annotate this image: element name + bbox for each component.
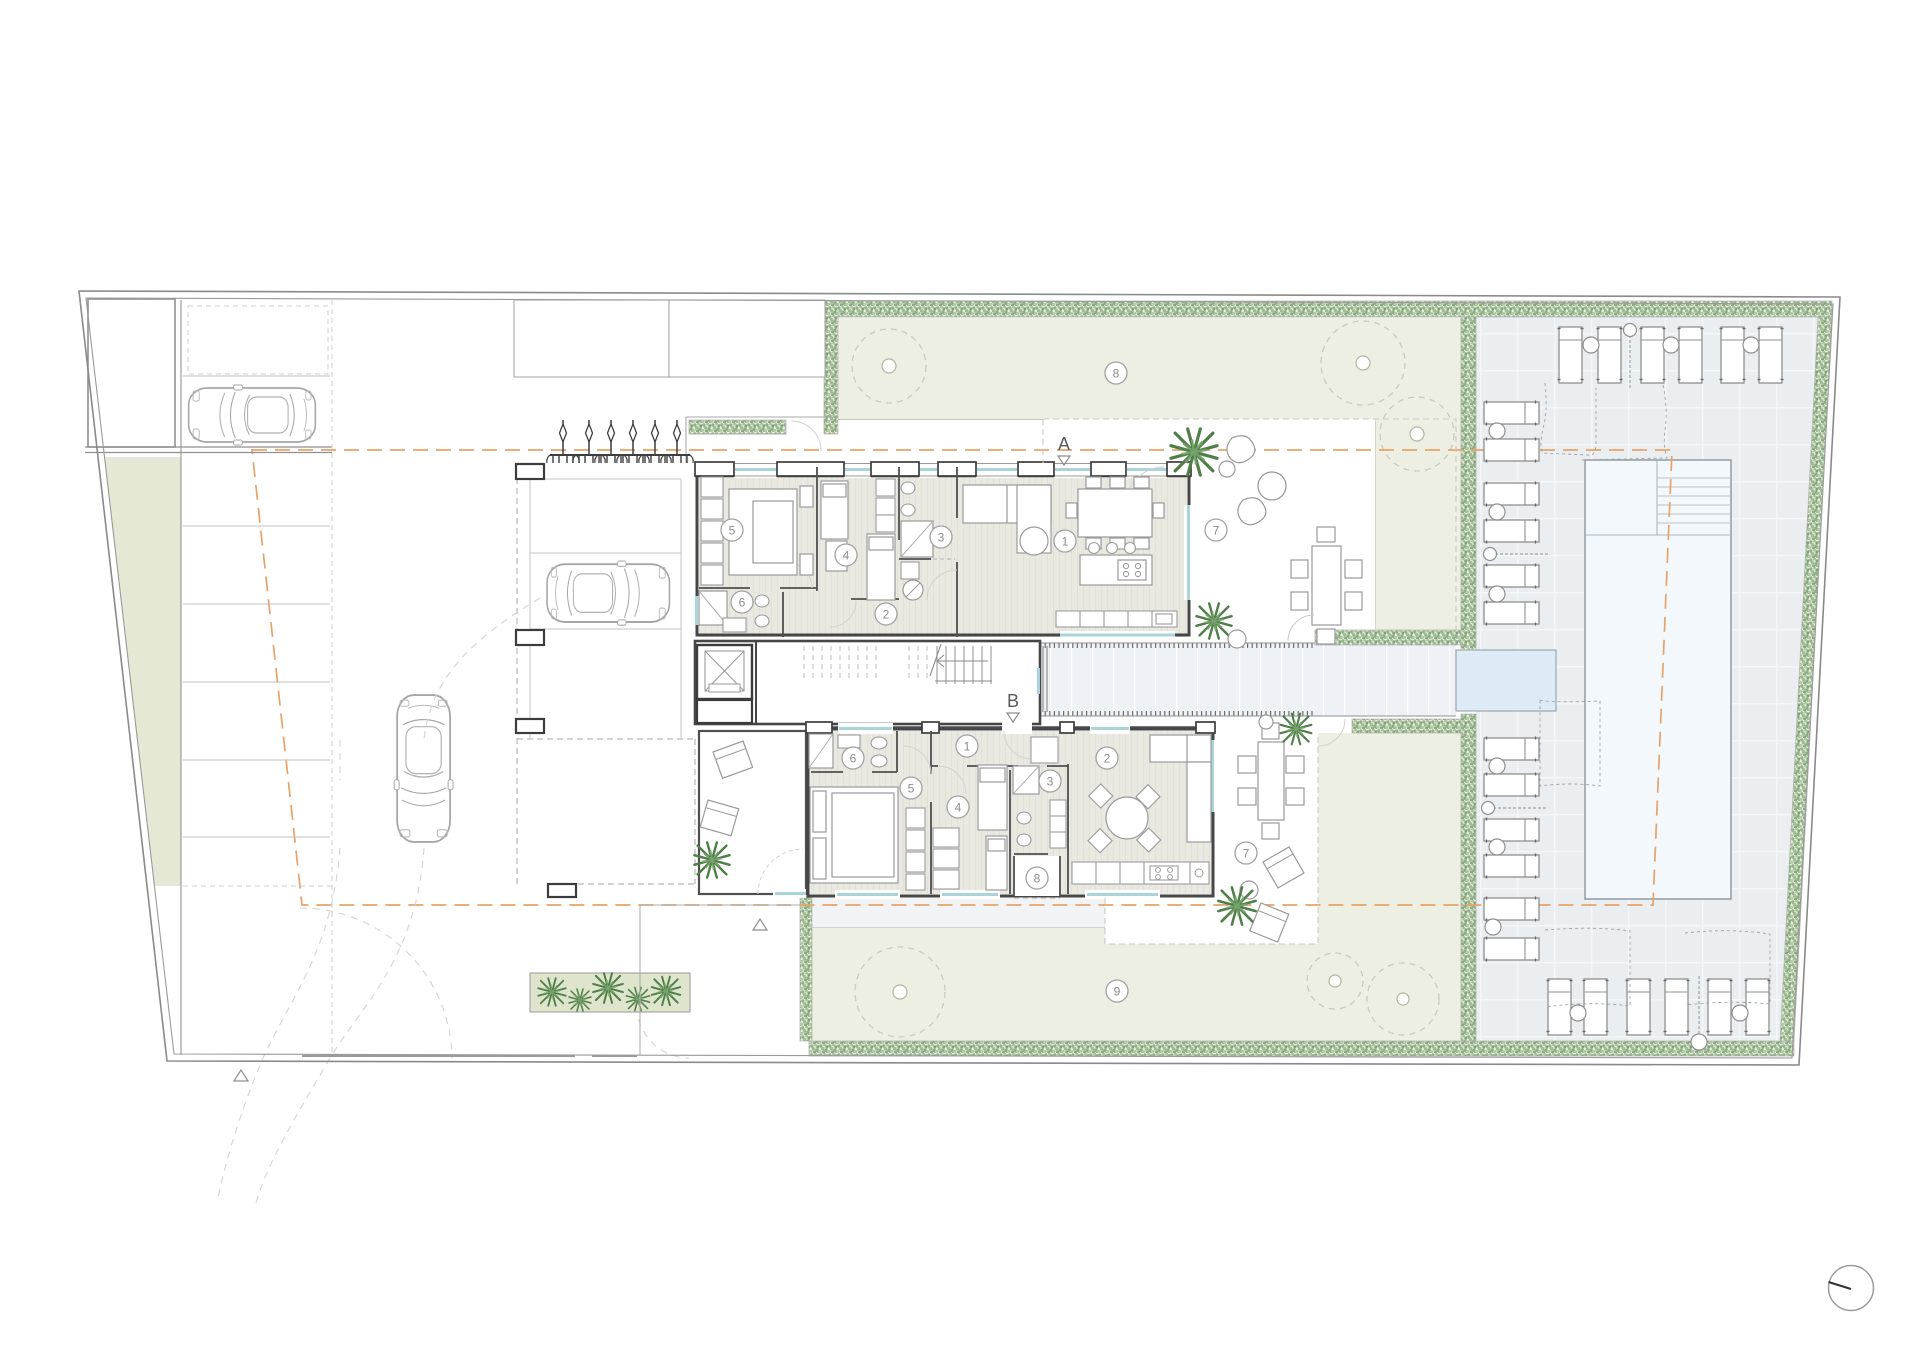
svg-text:A: A — [1058, 434, 1070, 454]
svg-text:6: 6 — [850, 752, 857, 766]
svg-text:9: 9 — [1114, 985, 1121, 999]
svg-text:8: 8 — [1034, 872, 1041, 886]
svg-text:2: 2 — [1104, 752, 1111, 766]
svg-text:3: 3 — [938, 531, 945, 545]
svg-text:6: 6 — [739, 596, 746, 610]
svg-text:1: 1 — [1062, 535, 1069, 549]
svg-text:4: 4 — [843, 549, 850, 563]
svg-text:2: 2 — [883, 608, 890, 622]
svg-text:3: 3 — [1047, 775, 1054, 789]
svg-text:5: 5 — [908, 782, 915, 796]
svg-text:7: 7 — [1243, 847, 1250, 861]
svg-text:4: 4 — [955, 801, 962, 815]
svg-text:5: 5 — [729, 524, 736, 538]
svg-text:7: 7 — [1213, 524, 1220, 538]
svg-text:B: B — [1007, 691, 1019, 711]
svg-text:8: 8 — [1113, 367, 1120, 381]
svg-text:1: 1 — [964, 740, 971, 754]
